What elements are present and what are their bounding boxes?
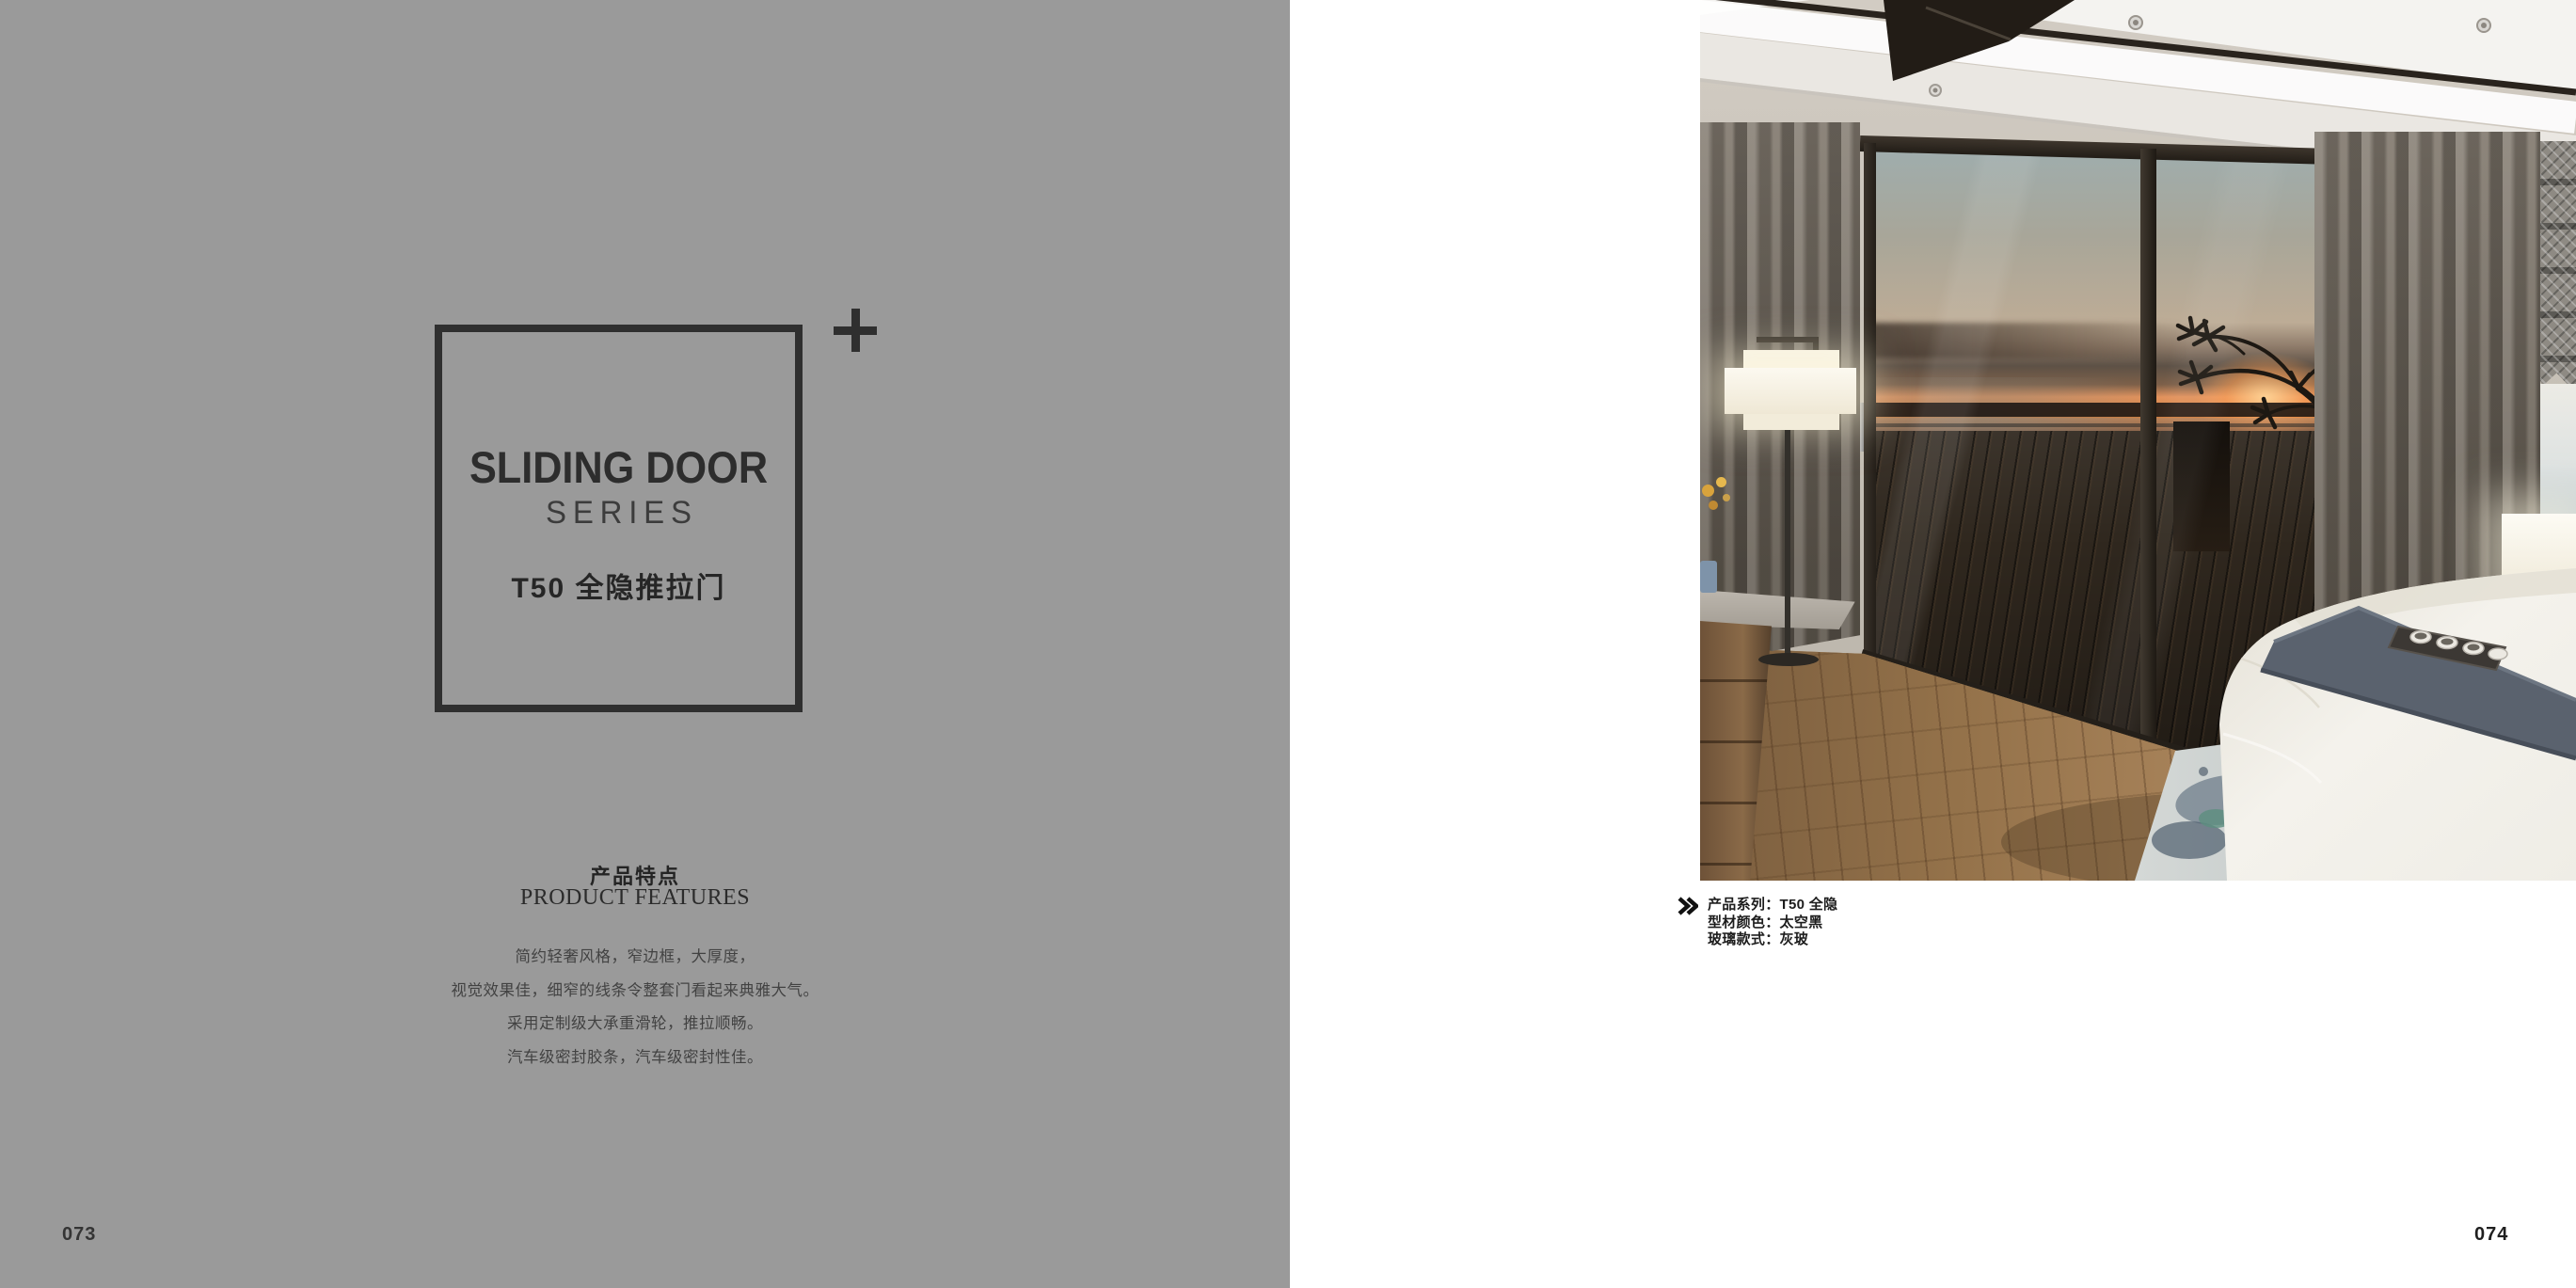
- spec-row: 产品系列：T50 全隐: [1708, 897, 1837, 914]
- spec-label: 型材颜色：: [1708, 914, 1780, 930]
- spec-value: T50 全隐: [1780, 897, 1838, 913]
- spec-row: 型材颜色：太空黑: [1708, 914, 1837, 932]
- plus-icon: [834, 309, 877, 352]
- spec-label: 玻璃款式：: [1708, 931, 1780, 947]
- features-heading-en: PRODUCT FEATURES: [0, 885, 1270, 911]
- page-number-left: 073: [62, 1224, 96, 1246]
- catalog-spread: SLIDING DOOR SERIES T50 全隐推拉门 产品特点 PRODU…: [0, 0, 2576, 1288]
- product-spec-block: 产品系列：T50 全隐 型材颜色：太空黑 玻璃款式：灰玻: [1677, 897, 1837, 949]
- series-title-line1: SLIDING DOOR: [456, 443, 781, 492]
- features-list: 简约轻奢风格，窄边框，大厚度， 视觉效果佳，细窄的线条令整套门看起来典雅大气。 …: [0, 941, 1270, 1074]
- spec-row: 玻璃款式：灰玻: [1708, 931, 1837, 949]
- spec-label: 产品系列：: [1708, 897, 1780, 913]
- spec-value: 太空黑: [1780, 914, 1823, 930]
- feature-line: 汽车级密封胶条，汽车级密封性佳。: [0, 1042, 1270, 1075]
- series-subtitle: T50 全隐推拉门: [442, 564, 795, 606]
- series-title-line2: SERIES: [448, 496, 790, 531]
- feature-line: 采用定制级大承重滑轮，推拉顺畅。: [0, 1008, 1270, 1042]
- bed-and-rug: [1700, 0, 2576, 881]
- series-title-box: SLIDING DOOR SERIES T50 全隐推拉门: [435, 325, 803, 712]
- spec-value: 灰玻: [1780, 931, 1809, 947]
- left-page: SLIDING DOOR SERIES T50 全隐推拉门 产品特点 PRODU…: [0, 0, 1290, 1288]
- spec-lines: 产品系列：T50 全隐 型材颜色：太空黑 玻璃款式：灰玻: [1708, 897, 1837, 949]
- double-chevron-icon: [1677, 897, 1698, 915]
- page-number-right: 074: [2474, 1224, 2508, 1246]
- bedroom-photo: [1700, 0, 2576, 881]
- feature-line: 简约轻奢风格，窄边框，大厚度，: [0, 941, 1270, 975]
- feature-line: 视觉效果佳，细窄的线条令整套门看起来典雅大气。: [0, 975, 1270, 1009]
